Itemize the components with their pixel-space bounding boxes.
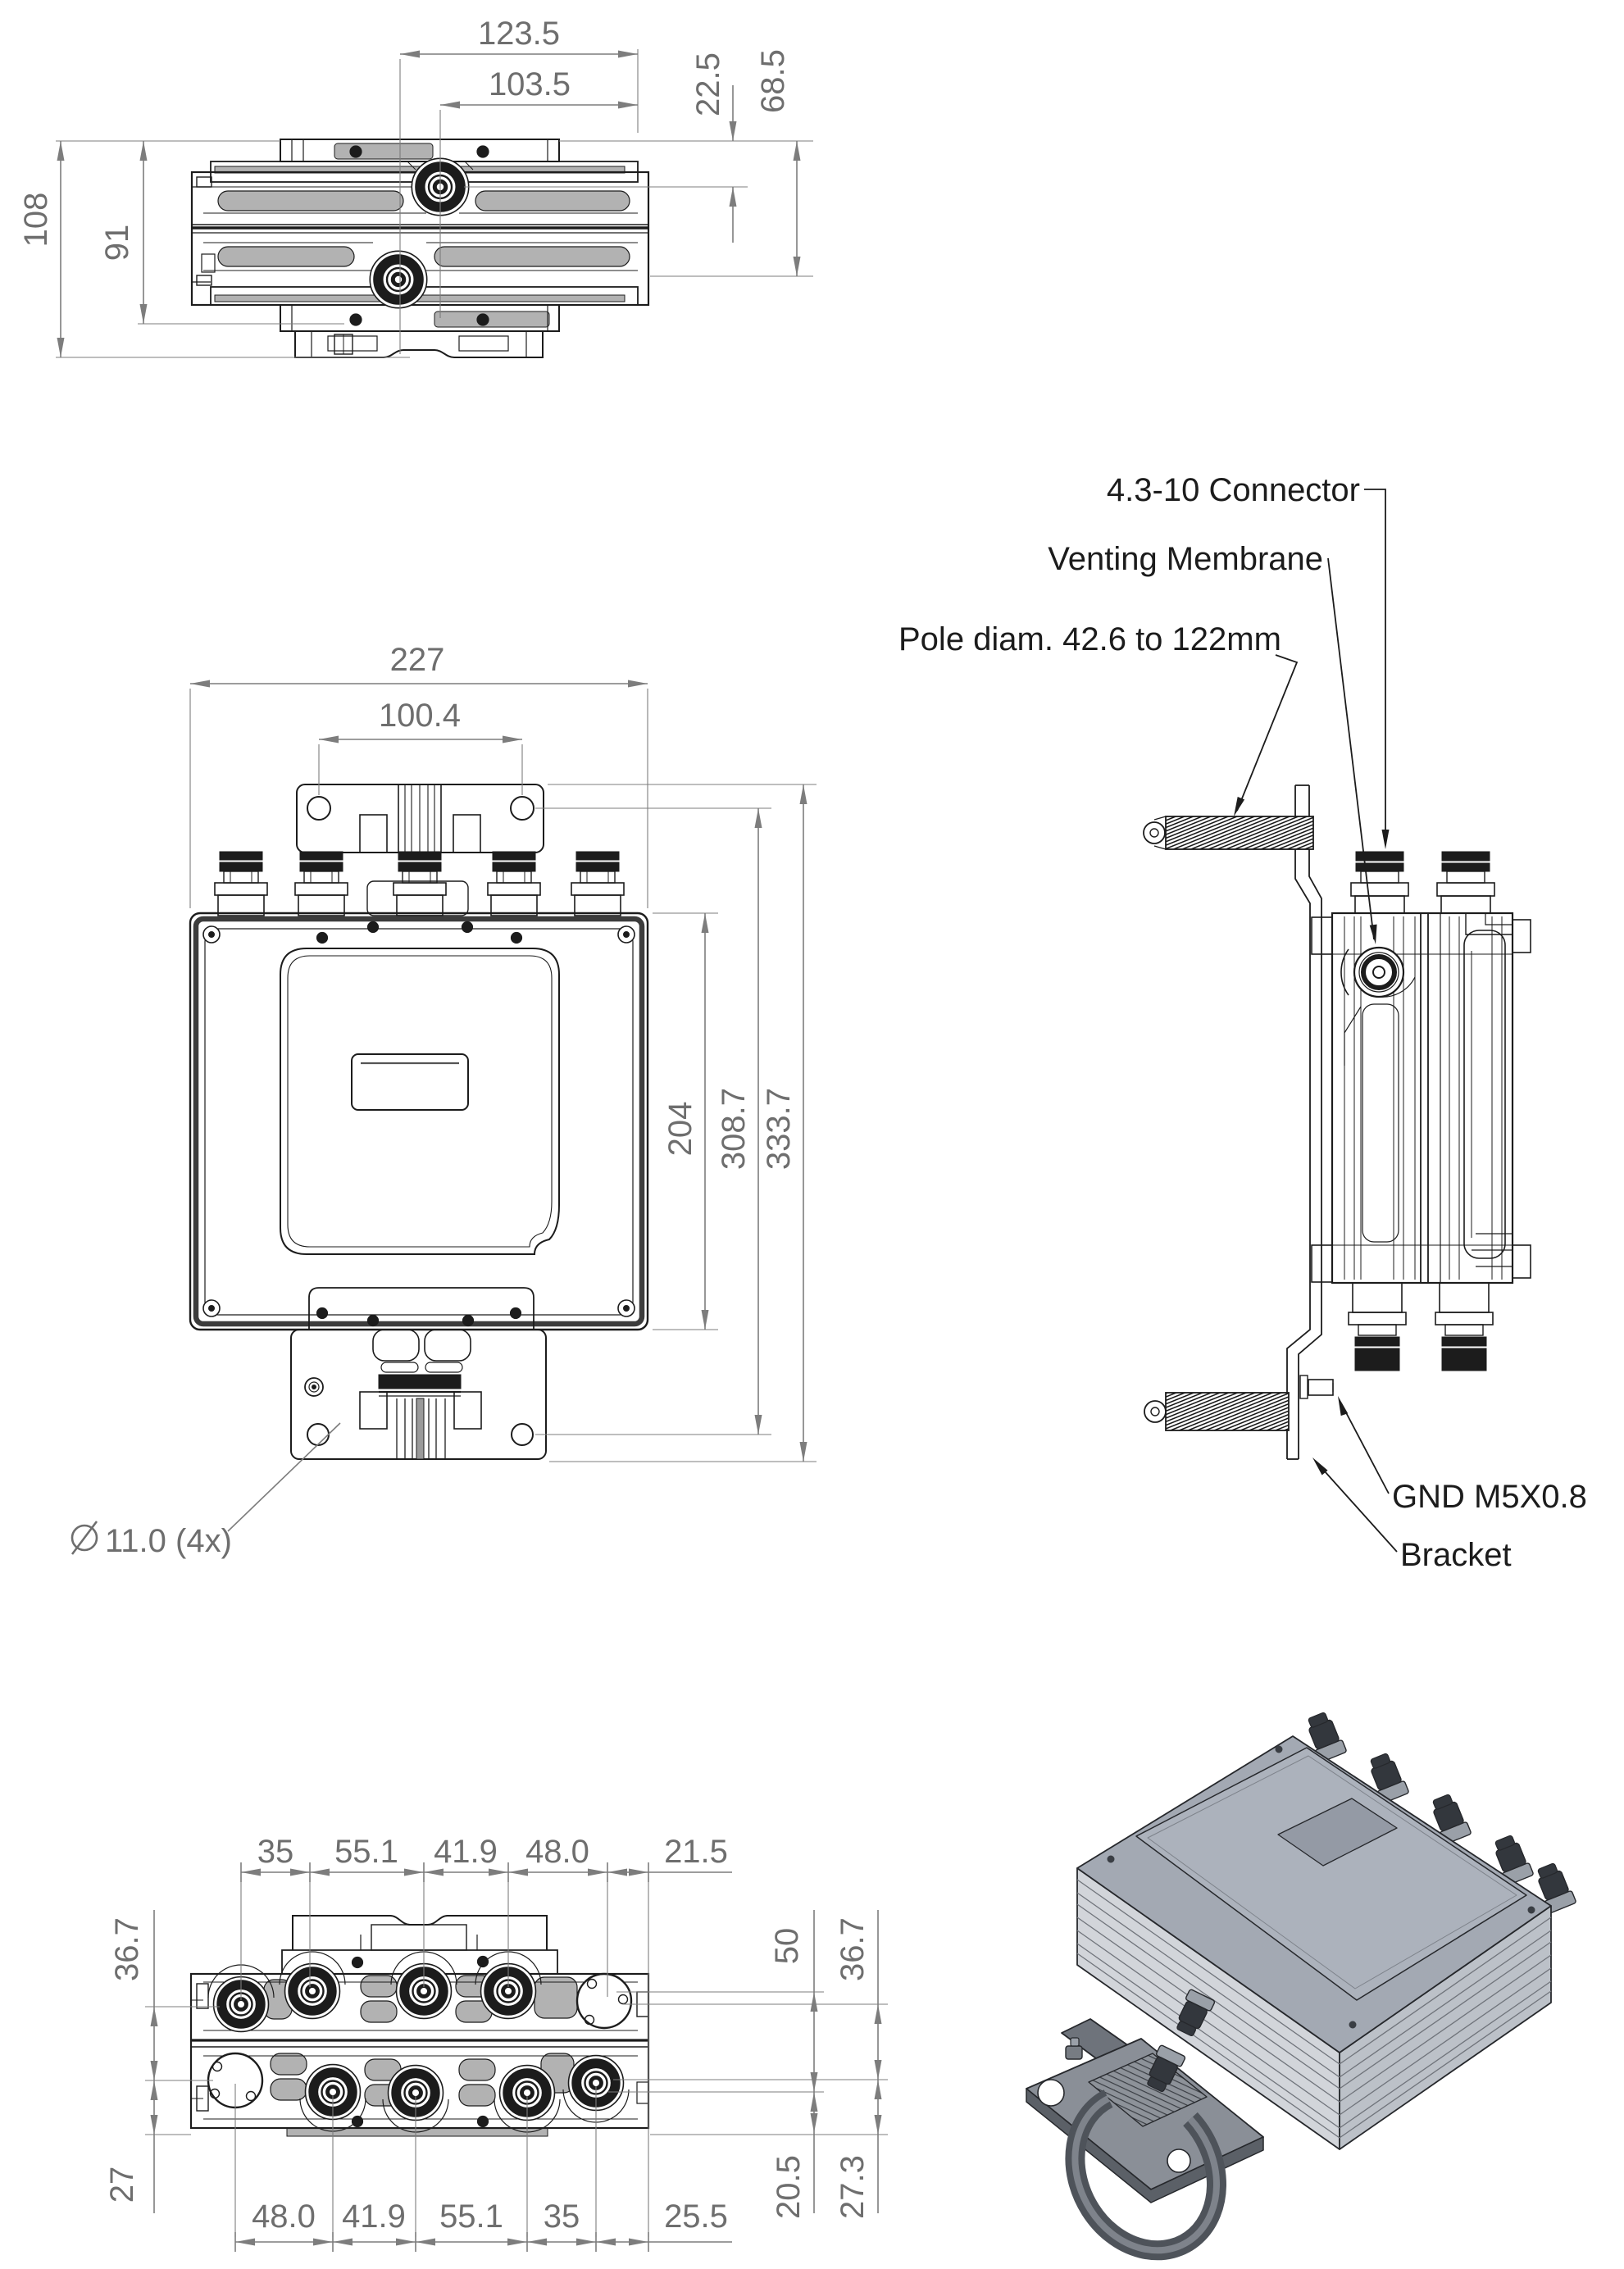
svg-text:41.9: 41.9: [434, 1834, 498, 1870]
svg-text:4.3-10 Connector: 4.3-10 Connector: [1107, 472, 1360, 508]
svg-text:27: 27: [104, 2167, 140, 2203]
svg-text:100.4: 100.4: [379, 698, 461, 734]
svg-text:27.3: 27.3: [835, 2155, 871, 2219]
svg-text:20.5: 20.5: [771, 2155, 807, 2219]
svg-text:11.0 (4x): 11.0 (4x): [105, 1523, 232, 1559]
svg-text:22.5: 22.5: [690, 52, 726, 116]
svg-text:25.5: 25.5: [664, 2199, 728, 2235]
svg-text:35: 35: [257, 1834, 294, 1870]
svg-text:Pole diam. 42.6 to 122mm: Pole diam. 42.6 to 122mm: [898, 621, 1281, 657]
svg-text:333.7: 333.7: [761, 1088, 797, 1170]
svg-text:227: 227: [390, 642, 445, 678]
svg-text:35: 35: [544, 2199, 580, 2235]
svg-text:55.1: 55.1: [334, 1834, 398, 1870]
svg-text:308.7: 308.7: [716, 1088, 752, 1170]
svg-text:204: 204: [662, 1102, 698, 1157]
svg-text:Bracket: Bracket: [1400, 1537, 1512, 1573]
svg-text:55.1: 55.1: [439, 2199, 503, 2235]
svg-text:103.5: 103.5: [489, 66, 571, 102]
svg-text:68.5: 68.5: [755, 49, 791, 113]
svg-text:GND M5X0.8: GND M5X0.8: [1392, 1479, 1587, 1515]
svg-text:91: 91: [99, 225, 135, 261]
svg-text:48.0: 48.0: [525, 1834, 589, 1870]
svg-text:Venting Membrane: Venting Membrane: [1048, 541, 1323, 577]
svg-text:36.7: 36.7: [835, 1917, 871, 1981]
svg-text:36.7: 36.7: [109, 1917, 145, 1981]
svg-text:123.5: 123.5: [478, 16, 560, 52]
svg-text:41.9: 41.9: [342, 2199, 406, 2235]
svg-text:108: 108: [18, 193, 54, 248]
svg-text:21.5: 21.5: [664, 1834, 728, 1870]
svg-text:50: 50: [769, 1928, 805, 1965]
svg-text:48.0: 48.0: [252, 2199, 316, 2235]
